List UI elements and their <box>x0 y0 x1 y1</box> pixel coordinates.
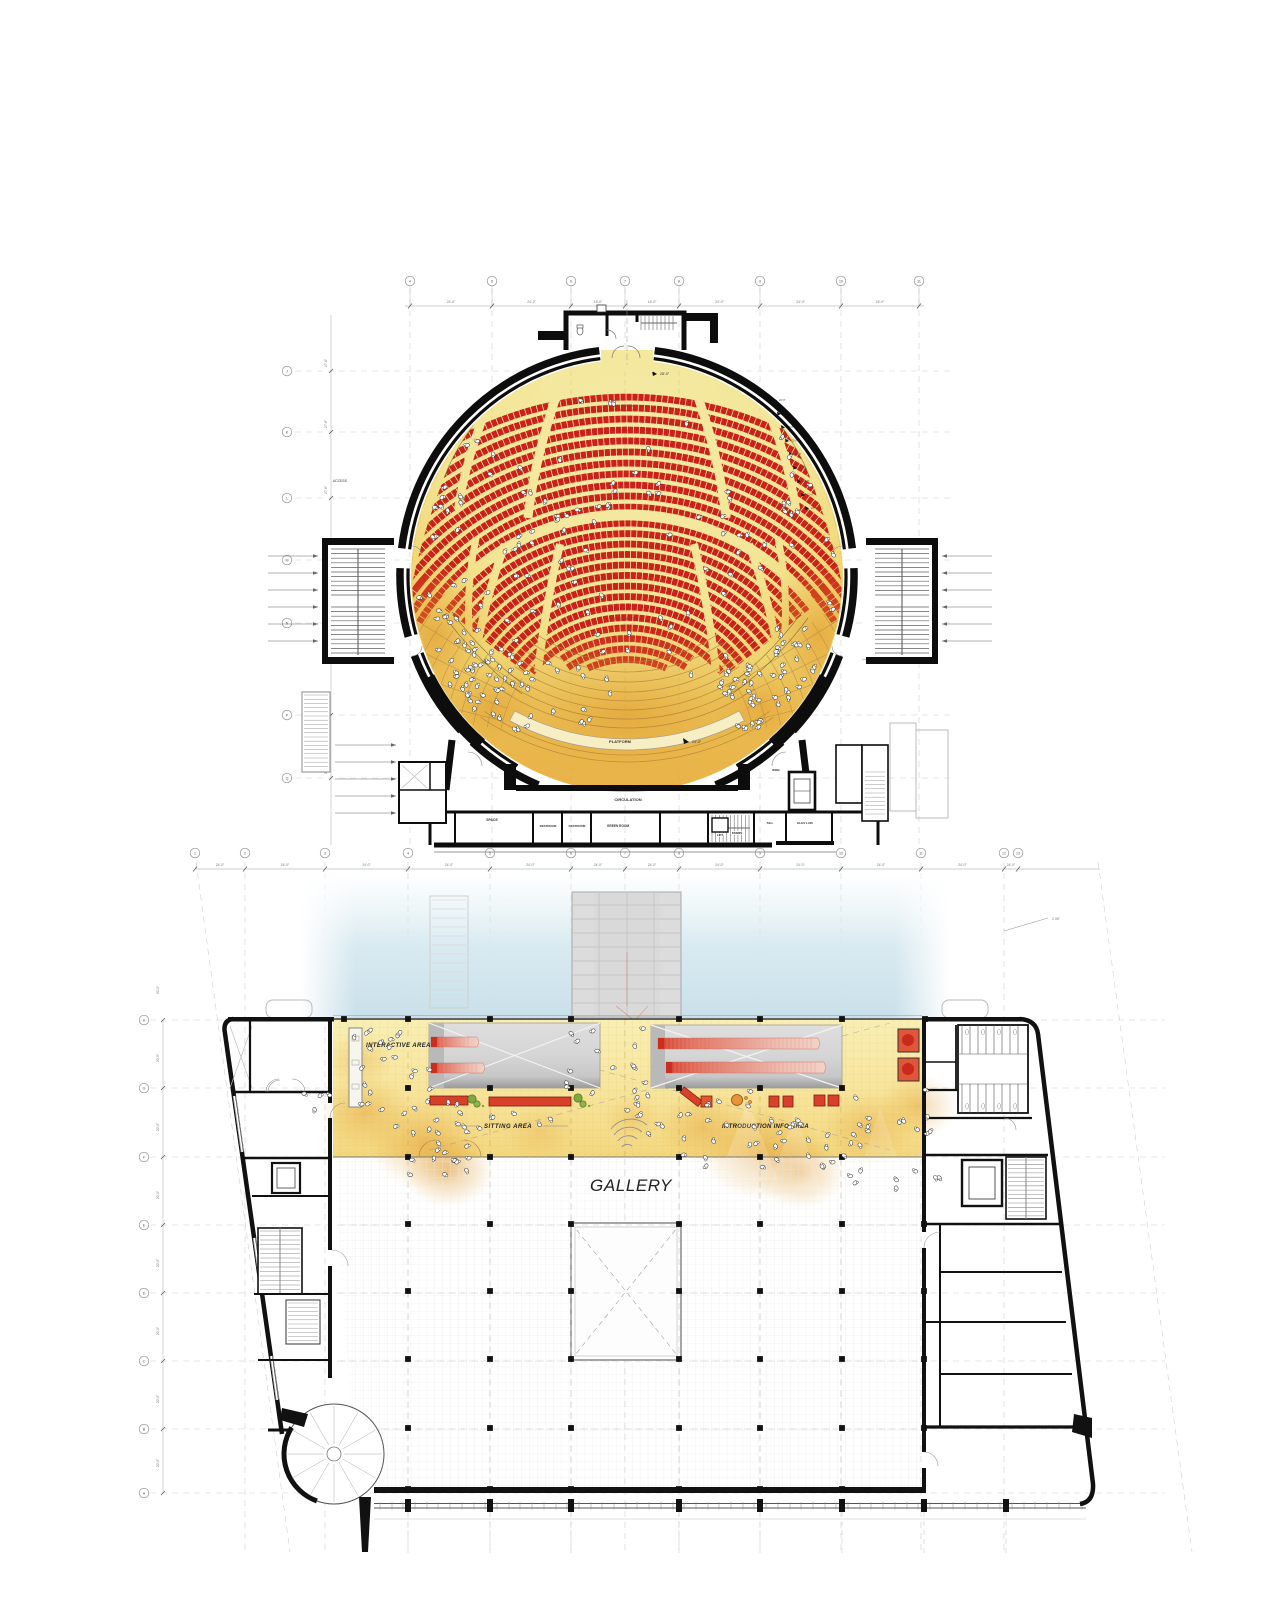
svg-text:20′-0″: 20′-0″ <box>156 1122 160 1131</box>
svg-text:4: 4 <box>409 279 411 283</box>
svg-text:STAIRS: STAIRS <box>732 831 742 835</box>
svg-text:20′-0″: 20′-0″ <box>156 985 160 994</box>
svg-text:7: 7 <box>624 279 626 283</box>
svg-text:22′-6″: 22′-6″ <box>795 452 802 456</box>
svg-text:20′-0″: 20′-0″ <box>156 1190 160 1199</box>
svg-text:20′-0″: 20′-0″ <box>156 1326 160 1335</box>
svg-text:20′-0″: 20′-0″ <box>156 1458 160 1467</box>
svg-text:20′-0″: 20′-0″ <box>156 1394 160 1403</box>
svg-text:L: L <box>286 496 288 500</box>
svg-text:20′-0″: 20′-0″ <box>156 1053 160 1062</box>
svg-text:C: C <box>143 1359 146 1363</box>
svg-text:THEATER: THEATER <box>619 409 635 413</box>
svg-text:11: 11 <box>917 279 921 283</box>
svg-text:12: 12 <box>1002 851 1006 855</box>
svg-text:LIFT: LIFT <box>717 833 723 837</box>
svg-text:27′-6″: 27′-6″ <box>324 419 328 428</box>
svg-text:24′-0″: 24′-0″ <box>796 300 805 304</box>
svg-text:24′-0″: 24′-0″ <box>447 300 456 304</box>
svg-text:2.06°: 2.06° <box>1052 917 1061 921</box>
svg-text:WING: WING <box>772 768 781 772</box>
svg-text:GALLERY: GALLERY <box>590 1176 673 1195</box>
svg-text:24′-0″: 24′-0″ <box>527 300 536 304</box>
svg-text:24′-0″: 24′-0″ <box>1007 863 1016 867</box>
svg-text:GREEN ROOM: GREEN ROOM <box>607 824 629 828</box>
svg-text:SILL: SILL <box>767 821 774 825</box>
svg-text:10: 10 <box>839 279 843 283</box>
svg-text:GOLD THEATER: GOLD THEATER <box>612 617 639 621</box>
svg-text:27′-6″: 27′-6″ <box>324 358 328 367</box>
svg-text:ELEV LOB: ELEV LOB <box>797 821 813 825</box>
svg-text:22′-6″: 22′-6″ <box>779 398 786 402</box>
svg-text:4: 4 <box>407 851 409 855</box>
svg-text:G: G <box>143 1086 146 1090</box>
svg-text:10: 10 <box>839 851 843 855</box>
svg-text:SITTING AREA: SITTING AREA <box>484 1124 532 1130</box>
svg-text:24′-0″: 24′-0″ <box>526 863 535 867</box>
svg-text:22′-6″: 22′-6″ <box>811 506 818 510</box>
svg-text:22′-6″: 22′-6″ <box>807 493 814 497</box>
svg-text:J: J <box>286 369 288 373</box>
svg-text:24′-0″: 24′-0″ <box>594 863 603 867</box>
svg-text:8: 8 <box>678 279 680 283</box>
svg-text:24′-0″: 24′-0″ <box>958 863 967 867</box>
svg-text:13: 13 <box>1016 851 1020 855</box>
svg-text:PLATFORM: PLATFORM <box>609 739 632 744</box>
svg-text:5: 5 <box>491 279 493 283</box>
svg-text:M: M <box>286 558 289 562</box>
svg-text:2: 2 <box>244 851 246 855</box>
svg-text:28′-0″: 28′-0″ <box>660 372 670 376</box>
svg-text:3: 3 <box>324 851 326 855</box>
svg-text:24′-0″: 24′-0″ <box>796 863 805 867</box>
svg-text:24′-0″: 24′-0″ <box>876 300 885 304</box>
svg-text:H: H <box>143 1018 146 1022</box>
svg-text:22′-6″: 22′-6″ <box>803 479 810 483</box>
svg-text:24′-0″: 24′-0″ <box>877 863 886 867</box>
svg-text:22′-6″: 22′-6″ <box>799 466 806 470</box>
svg-text:20′-0″: 20′-0″ <box>156 1258 160 1267</box>
svg-text:RESTROOM: RESTROOM <box>569 824 586 828</box>
svg-text:27′-6″: 27′-6″ <box>324 485 328 494</box>
svg-text:RESTROOM: RESTROOM <box>540 824 557 828</box>
svg-text:24′-0″: 24′-0″ <box>648 863 657 867</box>
svg-text:24′-0″: 24′-0″ <box>692 740 702 744</box>
svg-text:24′-0″: 24′-0″ <box>281 863 290 867</box>
svg-text:ACCESS: ACCESS <box>333 479 348 483</box>
svg-text:Q: Q <box>286 776 289 780</box>
svg-text:D: D <box>143 1291 146 1295</box>
svg-text:9: 9 <box>759 279 761 283</box>
svg-text:1: 1 <box>194 851 196 855</box>
svg-text:16′-0″: 16′-0″ <box>594 300 603 304</box>
svg-text:OPERA: OPERA <box>621 404 634 408</box>
svg-text:INTERACTIVE AREA: INTERACTIVE AREA <box>366 1043 431 1049</box>
svg-text:6: 6 <box>570 279 572 283</box>
svg-text:N: N <box>286 621 289 625</box>
svg-text:16′-0″: 16′-0″ <box>648 300 657 304</box>
svg-text:CIRCULATION: CIRCULATION <box>614 797 641 802</box>
svg-text:24′-0″: 24′-0″ <box>715 863 724 867</box>
svg-text:SPACE: SPACE <box>486 818 498 822</box>
svg-text:24′-0″: 24′-0″ <box>216 863 225 867</box>
svg-text:24′-0″: 24′-0″ <box>445 863 454 867</box>
svg-text:11: 11 <box>919 851 923 855</box>
svg-text:24′-0″: 24′-0″ <box>362 863 371 867</box>
svg-text:24′-0″: 24′-0″ <box>715 300 724 304</box>
